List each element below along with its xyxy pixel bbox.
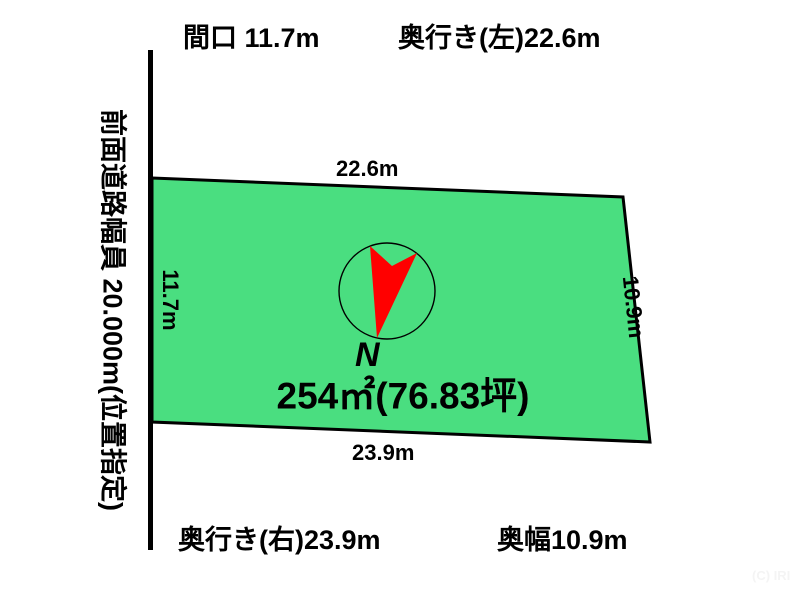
frontage-label: 間口 11.7m — [183, 25, 320, 52]
edge-dim-right: 10.9m — [619, 275, 647, 339]
area-label: 254㎡(76.83坪) — [277, 378, 530, 415]
land-plot-diagram: 間口 11.7m 奥行き(左)22.6m 前面道路幅員 20.000m(位置指定… — [0, 0, 800, 600]
road-width-label: 前面道路幅員 20.000m(位置指定) — [99, 109, 126, 511]
back-width-label: 奥幅10.9m — [497, 527, 628, 554]
edge-dim-bottom: 23.9m — [352, 442, 414, 464]
edge-dim-top: 22.6m — [336, 158, 398, 180]
north-letter: N — [355, 338, 380, 372]
copyright-watermark: (C) IRI — [752, 569, 790, 582]
depth-left-label: 奥行き(左)22.6m — [398, 25, 601, 52]
depth-right-label: 奥行き(右)23.9m — [178, 527, 381, 554]
edge-dim-left: 11.7m — [159, 269, 181, 330]
